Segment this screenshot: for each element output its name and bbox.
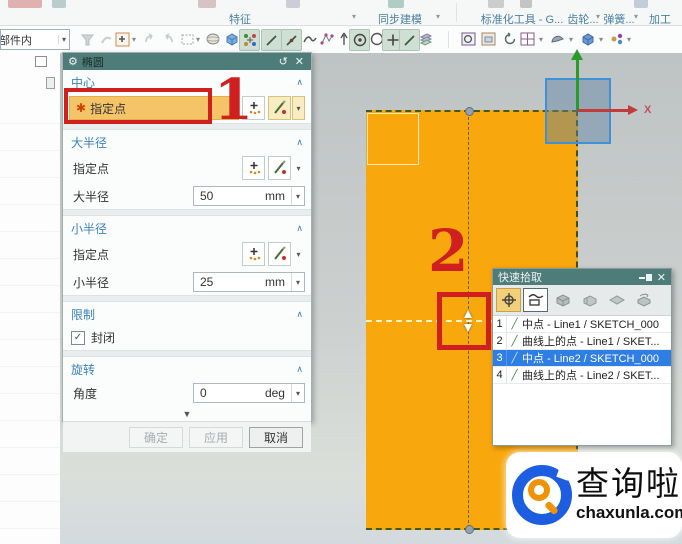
- chevron-down-icon[interactable]: ▾: [292, 242, 305, 266]
- filter-bodies-icon[interactable]: [550, 288, 575, 312]
- dialog-title: 椭圆: [82, 54, 104, 70]
- chevron-up-icon[interactable]: ∧: [296, 309, 303, 320]
- section-label: 限制: [71, 306, 95, 323]
- item-number: 4: [493, 367, 507, 383]
- annotation-number-1: 1: [214, 72, 253, 128]
- window-layout-icon[interactable]: [518, 29, 537, 49]
- specify-point-label: 指定点: [73, 246, 109, 263]
- section-label: 旋转: [71, 361, 95, 378]
- item-label: 曲线上的点 - Line1 / SKET...: [522, 333, 660, 349]
- chevron-down-icon[interactable]: ▾: [292, 156, 305, 180]
- section-label: 大半径: [71, 134, 107, 151]
- redo-rotate-icon[interactable]: [159, 29, 178, 49]
- panel-pin-icon[interactable]: [46, 77, 55, 89]
- section-view-icon[interactable]: [548, 29, 567, 49]
- y-axis-arrowhead-icon: [571, 49, 583, 60]
- unit-label: mm: [265, 275, 285, 289]
- annotation-box-step2: [437, 292, 491, 350]
- chevron-down-icon[interactable]: ▾: [436, 12, 440, 21]
- specify-point-label: 指定点: [73, 160, 109, 177]
- point-picker-button[interactable]: [268, 96, 291, 120]
- reset-icon[interactable]: ↺: [279, 55, 288, 68]
- ribbon-cutoff-icon: [634, 0, 648, 8]
- sphere-icon[interactable]: [203, 29, 222, 49]
- unit-label: deg: [265, 386, 285, 400]
- section-header-rotation[interactable]: 旋转 ∧: [63, 357, 311, 380]
- chevron-down-icon[interactable]: ▾: [596, 12, 600, 21]
- item-label: 曲线上的点 - Line2 / SKET...: [522, 367, 660, 383]
- close-icon[interactable]: ✕: [657, 271, 666, 284]
- line-icon: ╱: [507, 353, 522, 364]
- item-label: 中点 - Line2 / SKETCH_000: [522, 350, 659, 366]
- line-icon: ╱: [507, 336, 522, 347]
- chevron-up-icon[interactable]: ∧: [296, 364, 303, 375]
- quick-pick-popup[interactable]: 快速拾取 ✕ 1 ╱ 中点 - Line1 / SKETCH_000 2 ╱ 曲…: [492, 268, 672, 446]
- section-header-limits[interactable]: 限制 ∧: [63, 302, 311, 325]
- minor-radius-input[interactable]: 25 mm ▾: [193, 272, 305, 292]
- dialog-button-bar: 确定 应用 取消: [63, 421, 311, 452]
- sketch-corner-outline: [367, 113, 419, 165]
- ribbon-cutoff-icon: [8, 0, 42, 8]
- chevron-down-icon[interactable]: ▾: [291, 187, 304, 205]
- ribbon-group-spring[interactable]: 弹簧...: [602, 11, 636, 27]
- chevron-down-icon[interactable]: ▾: [596, 29, 606, 49]
- selection-scope-combo[interactable]: 部件内 ▾: [0, 29, 70, 50]
- point-dialog-button[interactable]: [242, 156, 265, 180]
- chevron-down-icon[interactable]: ▾: [291, 273, 304, 291]
- chevron-up-icon[interactable]: ∧: [296, 137, 303, 148]
- pin-icon[interactable]: [639, 274, 652, 281]
- closed-checkbox[interactable]: ✓: [71, 331, 85, 345]
- x-axis-arrow[interactable]: [578, 109, 630, 112]
- chevron-down-icon[interactable]: ▾: [352, 12, 356, 21]
- item-number: 2: [493, 333, 507, 349]
- ribbon-strip: 特征 ▾ 同步建模 ▾ 标准化工具 - G... 齿轮... ▾ 弹簧... ▾…: [0, 0, 682, 26]
- navigator-panel[interactable]: [0, 53, 61, 544]
- major-radius-label: 大半径: [73, 188, 109, 205]
- section-header-major-radius[interactable]: 大半径 ∧: [63, 130, 311, 153]
- minor-radius-value[interactable]: 25: [200, 275, 213, 289]
- quick-pick-item-selected[interactable]: 3 ╱ 中点 - Line2 / SKETCH_000: [493, 350, 671, 367]
- ribbon-cutoff-icon: [286, 0, 300, 8]
- ribbon-group-synchronous-modeling[interactable]: 同步建模: [370, 11, 430, 27]
- chevron-down-icon[interactable]: ▾: [292, 96, 305, 120]
- annotation-box-step1: [64, 88, 212, 124]
- midpoint-handle-bottom[interactable]: [465, 525, 474, 534]
- quick-pick-item[interactable]: 4 ╱ 曲线上的点 - Line2 / SKET...: [493, 367, 671, 384]
- chevron-down-icon[interactable]: ▾: [193, 29, 203, 49]
- y-axis-arrow[interactable]: [576, 57, 579, 110]
- apply-button[interactable]: 应用: [189, 427, 243, 448]
- ribbon-group-gear[interactable]: 齿轮...: [566, 11, 600, 27]
- line-icon: ╱: [507, 370, 522, 381]
- filter-features-icon[interactable]: [631, 288, 656, 312]
- gear-icon: ⚙: [68, 55, 78, 68]
- x-axis-arrowhead-icon: [628, 105, 638, 115]
- midpoint-snap-icon[interactable]: [281, 29, 302, 51]
- watermark-badge: 查询啦 chaxunla.com: [506, 452, 682, 538]
- quick-pick-item[interactable]: 1 ╱ 中点 - Line1 / SKETCH_000: [493, 316, 671, 333]
- snap-point-icon[interactable]: [239, 29, 260, 51]
- selection-scope-value: 部件内: [0, 32, 32, 48]
- ok-button[interactable]: 确定: [129, 427, 183, 448]
- quick-pick-title: 快速拾取: [498, 269, 542, 285]
- ribbon-cutoff-icon: [488, 0, 504, 8]
- chevron-down-icon[interactable]: ▾: [566, 29, 576, 49]
- chevron-up-icon[interactable]: ∧: [296, 223, 303, 234]
- endpoint-snap-icon[interactable]: [261, 29, 282, 51]
- minor-radius-label: 小半径: [73, 274, 109, 291]
- angle-input[interactable]: 0 deg ▾: [193, 383, 305, 403]
- ribbon-cutoff-icon: [52, 0, 66, 8]
- chevron-up-icon[interactable]: ∧: [296, 77, 303, 88]
- quick-pick-item[interactable]: 2 ╱ 曲线上的点 - Line1 / SKET...: [493, 333, 671, 350]
- unit-label: mm: [265, 189, 285, 203]
- quick-pick-titlebar[interactable]: 快速拾取 ✕: [493, 269, 671, 285]
- ribbon-group-machining[interactable]: 加工: [642, 11, 678, 27]
- filter-edges-icon[interactable]: [604, 288, 629, 312]
- chevron-down-icon[interactable]: ▾: [536, 29, 546, 49]
- section-label: 小半径: [71, 220, 107, 237]
- ribbon-group-standard-tools[interactable]: 标准化工具 - G...: [472, 11, 572, 27]
- panel-window-icon[interactable]: [35, 56, 47, 67]
- fit-view-icon[interactable]: [479, 29, 498, 49]
- point-dialog-button[interactable]: [242, 242, 265, 266]
- x-axis-label: X: [644, 104, 651, 116]
- filter-icon[interactable]: [78, 29, 97, 49]
- quick-pick-filter-toolbar: [493, 285, 671, 316]
- watermark-domain-text: chaxunla.com: [576, 503, 682, 523]
- item-number: 3: [493, 350, 507, 366]
- chevron-down-icon[interactable]: ▾: [634, 12, 638, 21]
- cancel-button[interactable]: 取消: [249, 427, 303, 448]
- filter-points-icon[interactable]: [496, 288, 521, 312]
- chaxunla-logo-icon: [512, 465, 572, 525]
- major-radius-value[interactable]: 50: [200, 189, 213, 203]
- dialog-collapse-icon[interactable]: ▼: [63, 406, 311, 421]
- ribbon-cutoff-icon: [520, 0, 532, 8]
- ribbon-cutoff-icon: [198, 0, 216, 8]
- chevron-down-icon[interactable]: ▾: [624, 29, 634, 49]
- shaded-view-icon[interactable]: [578, 29, 597, 49]
- chevron-down-icon[interactable]: ▾: [58, 35, 69, 44]
- chevron-down-icon[interactable]: ▾: [291, 384, 304, 402]
- ribbon-group-features[interactable]: 特征: [205, 11, 275, 27]
- chevron-down-icon[interactable]: ▾: [129, 29, 139, 49]
- layers-icon[interactable]: [416, 29, 435, 49]
- point-picker-button[interactable]: [268, 242, 291, 266]
- ribbon-cutoff-icon: [388, 0, 404, 8]
- section-header-minor-radius[interactable]: 小半径 ∧: [63, 216, 311, 239]
- filter-faces-icon[interactable]: [577, 288, 602, 312]
- refresh-icon[interactable]: [500, 29, 519, 49]
- item-number: 1: [493, 316, 507, 332]
- midpoint-handle-top[interactable]: [465, 107, 474, 116]
- angle-value[interactable]: 0: [200, 386, 207, 400]
- item-label: 中点 - Line1 / SKETCH_000: [522, 316, 659, 332]
- major-radius-input[interactable]: 50 mm ▾: [193, 186, 305, 206]
- dialog-titlebar[interactable]: ⚙ 椭圆 ↺ ✕: [63, 53, 311, 70]
- closed-label: 封闭: [91, 329, 115, 346]
- point-picker-button[interactable]: [268, 156, 291, 180]
- zoom-window-icon[interactable]: [459, 29, 478, 49]
- close-icon[interactable]: ✕: [295, 55, 304, 68]
- watermark-brand-text: 查询啦: [576, 467, 681, 501]
- filter-curves-icon[interactable]: [523, 288, 548, 312]
- undo-rotate-icon[interactable]: [140, 29, 159, 49]
- line-icon: ╱: [507, 319, 522, 330]
- annotation-number-2: 2: [428, 222, 468, 280]
- angle-label: 角度: [73, 385, 97, 402]
